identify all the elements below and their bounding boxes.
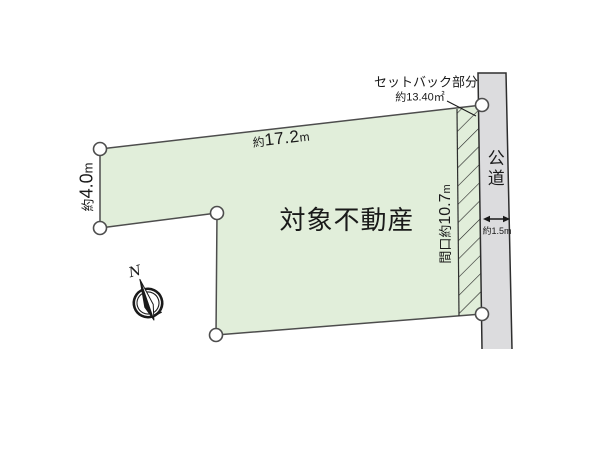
property-label: 対象不動産	[279, 206, 414, 236]
road-width-label: 約1.5m	[482, 226, 511, 236]
left-dimension-value: 4.0	[76, 173, 96, 198]
left-dimension-unit: m	[80, 163, 95, 174]
road-label: 公道	[484, 149, 504, 189]
frontage-unit: m	[441, 184, 453, 193]
boundary-point	[476, 308, 489, 321]
plot-diagram: セットバック部分 約13.40㎡ 約17.2m 約4.0m 間口約10.7m 対…	[0, 0, 600, 450]
boundary-point	[210, 329, 223, 342]
boundary-point	[94, 143, 107, 156]
frontage-dimension-label: 間口約10.7m	[437, 184, 455, 263]
top-dimension-unit: m	[299, 130, 311, 145]
frontage-prefix: 間口約	[438, 225, 453, 264]
setback-label: セットバック部分	[374, 76, 478, 91]
setback-area-label: 約13.40㎡	[395, 92, 445, 105]
boundary-point	[94, 222, 107, 235]
boundary-point	[211, 207, 224, 220]
compass-icon	[126, 275, 167, 325]
frontage-value: 10.7	[437, 194, 454, 225]
left-dimension-label: 約4.0m	[76, 163, 97, 212]
top-dimension-value: 17.2	[263, 127, 300, 150]
left-dimension-prefix: 約	[80, 198, 95, 211]
boundary-point	[476, 99, 489, 112]
